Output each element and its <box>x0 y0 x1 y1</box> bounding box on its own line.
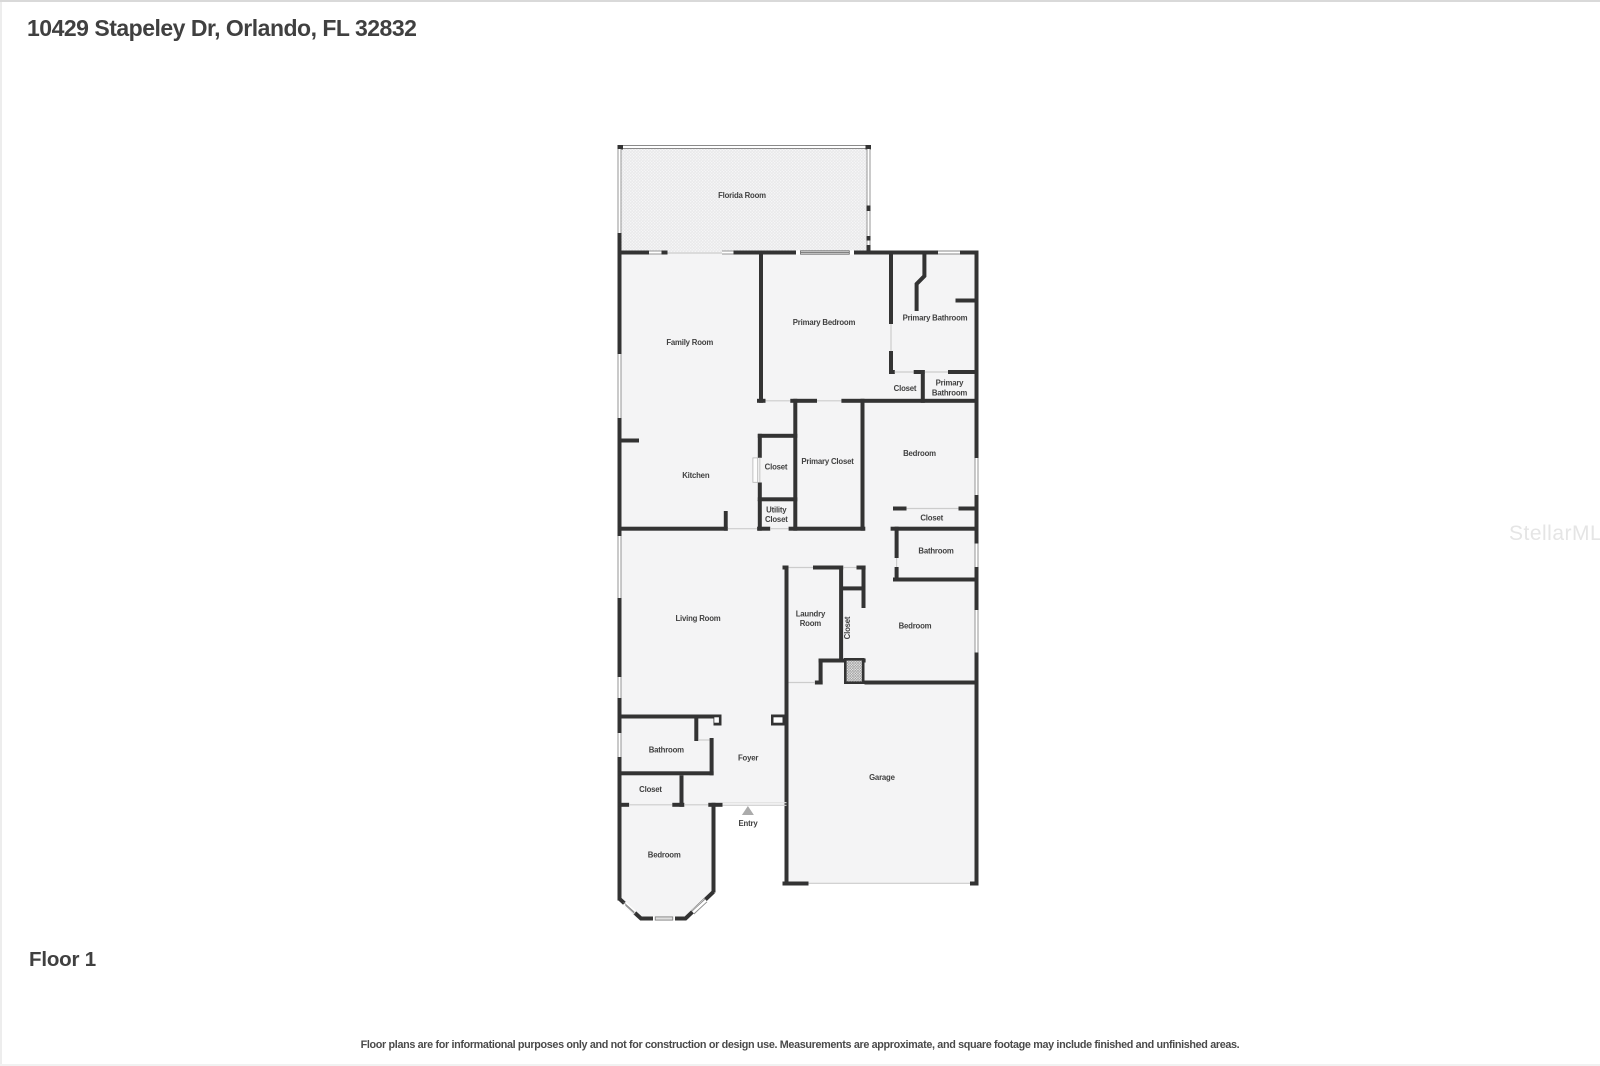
svg-text:Primary Bathroom: Primary Bathroom <box>903 314 968 323</box>
svg-text:Utility: Utility <box>766 505 787 514</box>
svg-text:Bedroom: Bedroom <box>648 851 681 860</box>
svg-text:Bedroom: Bedroom <box>903 449 936 458</box>
svg-text:Closet: Closet <box>843 616 852 639</box>
svg-text:Closet: Closet <box>920 514 943 523</box>
svg-text:Closet: Closet <box>894 384 917 393</box>
svg-text:Entry: Entry <box>739 819 759 828</box>
svg-text:Primary Bedroom: Primary Bedroom <box>793 318 856 327</box>
svg-text:Room: Room <box>800 619 822 628</box>
svg-text:Garage: Garage <box>869 773 896 782</box>
svg-text:Primary: Primary <box>936 379 965 388</box>
svg-text:Living Room: Living Room <box>675 614 720 623</box>
svg-text:Primary Closet: Primary Closet <box>801 457 854 466</box>
svg-text:Florida Room: Florida Room <box>718 191 766 200</box>
svg-text:Laundry: Laundry <box>796 609 826 618</box>
svg-text:Family Room: Family Room <box>666 338 713 347</box>
svg-text:Kitchen: Kitchen <box>682 471 710 480</box>
svg-text:Closet: Closet <box>639 785 662 794</box>
svg-text:Foyer: Foyer <box>738 754 758 763</box>
svg-text:Bathroom: Bathroom <box>932 389 967 398</box>
svg-text:Closet: Closet <box>765 515 788 524</box>
svg-text:Bathroom: Bathroom <box>918 547 953 556</box>
svg-text:Bedroom: Bedroom <box>899 622 932 631</box>
svg-text:Bathroom: Bathroom <box>649 745 684 754</box>
svg-text:Closet: Closet <box>765 463 788 472</box>
